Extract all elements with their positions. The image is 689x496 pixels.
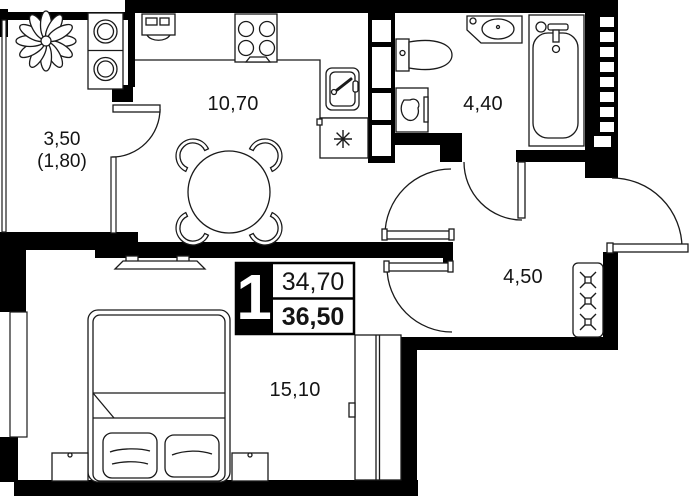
bedroom-area-label: 15,10 [269,379,320,401]
washer-dryer-icon [88,13,123,89]
apartment-card: 1 34,70 36,50 [236,261,354,334]
balcony-door-icon [112,105,160,157]
room-bathroom [396,15,584,146]
bathroom-door-icon [464,162,525,220]
bathtub-icon [529,15,584,146]
wall-bath-bottom-right [516,150,605,162]
wall-bedroom-right [400,337,417,482]
floor-plan-page: 3,50 (1,80) 10,70 4,40 4,50 15,10 1 34,7… [0,0,689,496]
wall-balcony-kitchen [128,13,135,87]
total-area-value: 36,50 [282,303,345,331]
living-room-door-icon [382,169,454,240]
wall-hall-right [603,252,618,350]
fridge-icon [317,118,368,158]
wall-top [125,0,618,13]
wall-living-bedroom [95,242,453,258]
dining-table-icon [169,132,289,252]
wall-bedroom-left-top [0,232,26,312]
room-balcony [16,11,123,89]
rooms-count: 1 [236,261,272,333]
wash-basin-icon [467,16,522,43]
duct-shaft-openings [372,20,391,156]
room-hallway [573,263,603,337]
entrance-door-icon [607,178,688,253]
stove-icon [235,14,277,62]
balcony-partition-glazing-icon [111,157,116,233]
room-kitchen-living [135,14,368,252]
kitchen-sink-icon [326,68,359,110]
balcony-area-label: 3,50 [44,129,81,150]
kitchen-area-label: 10,70 [207,93,258,115]
floor-plan: 3,50 (1,80) 10,70 4,40 4,50 15,10 1 34,7… [0,0,689,496]
bed-icon [88,310,230,482]
bedroom-door-icon [384,261,453,332]
balcony-area-reduced-label: (1,80) [37,151,87,172]
bedroom-window-icon [10,312,27,437]
kitchen-appliance-icon [142,14,175,40]
wall-hall-bottom [400,337,618,350]
hallway-area-label: 4,50 [503,266,543,288]
wall-bedroom-left-bottom [0,437,18,482]
bathroom-area-label: 4,40 [463,93,503,115]
balcony-glazing-icon [2,20,6,232]
wall-bath-chunk [440,133,462,162]
laundry-cabinet-icon [396,88,428,132]
hallway-wardrobe-icon [573,263,603,337]
bedroom-wardrobe-icon [349,335,401,480]
toilet-icon [396,39,452,71]
living-area-value: 34,70 [282,268,345,296]
